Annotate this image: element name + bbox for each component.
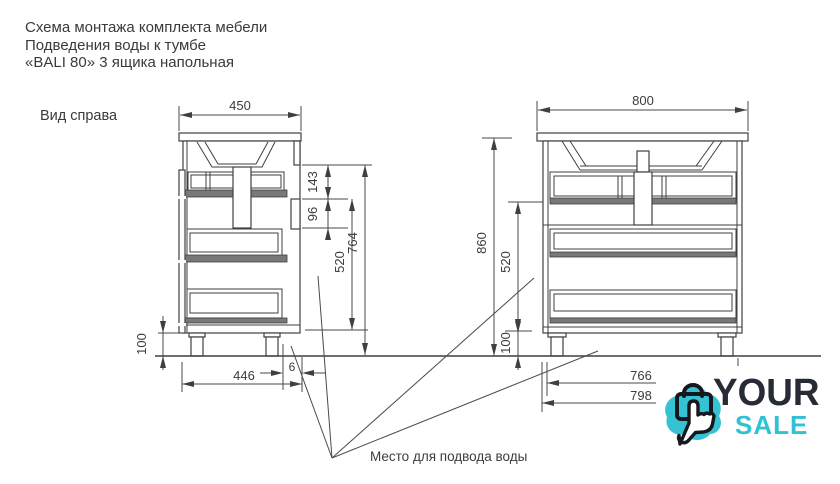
dim-front-leg-height: 100 <box>498 332 513 354</box>
side-view-cabinet <box>178 133 301 356</box>
dim-side-leg-height: 100 <box>134 333 149 355</box>
dim-front-total-height: 860 <box>474 232 489 254</box>
water-supply-note: Место для подвода воды <box>370 449 527 464</box>
dim-front-top-width: 800 <box>632 93 654 108</box>
dim-side-bracket-height: 96 <box>305 207 320 221</box>
dim-side-body-height: 764 <box>345 232 360 254</box>
installation-scheme-page: Схема монтажа комплекта мебели Подведени… <box>0 0 840 484</box>
dim-front-inner-width: 766 <box>630 368 652 383</box>
front-view-cabinet <box>537 133 748 356</box>
dim-side-top-width: 450 <box>229 98 251 113</box>
dim-side-depth: 446 <box>233 368 255 383</box>
dim-side-upper-height: 143 <box>305 171 320 193</box>
dim-front-drawer-zone: 520 <box>498 251 513 273</box>
dim-front-outer-width: 798 <box>630 388 652 403</box>
dim-side-back-gap: 6 <box>289 360 296 374</box>
logo-brand-top: YOUR <box>713 372 820 415</box>
logo-brand-bottom: SALE <box>735 410 808 441</box>
your-sale-logo: YOUR SALE <box>656 366 840 462</box>
